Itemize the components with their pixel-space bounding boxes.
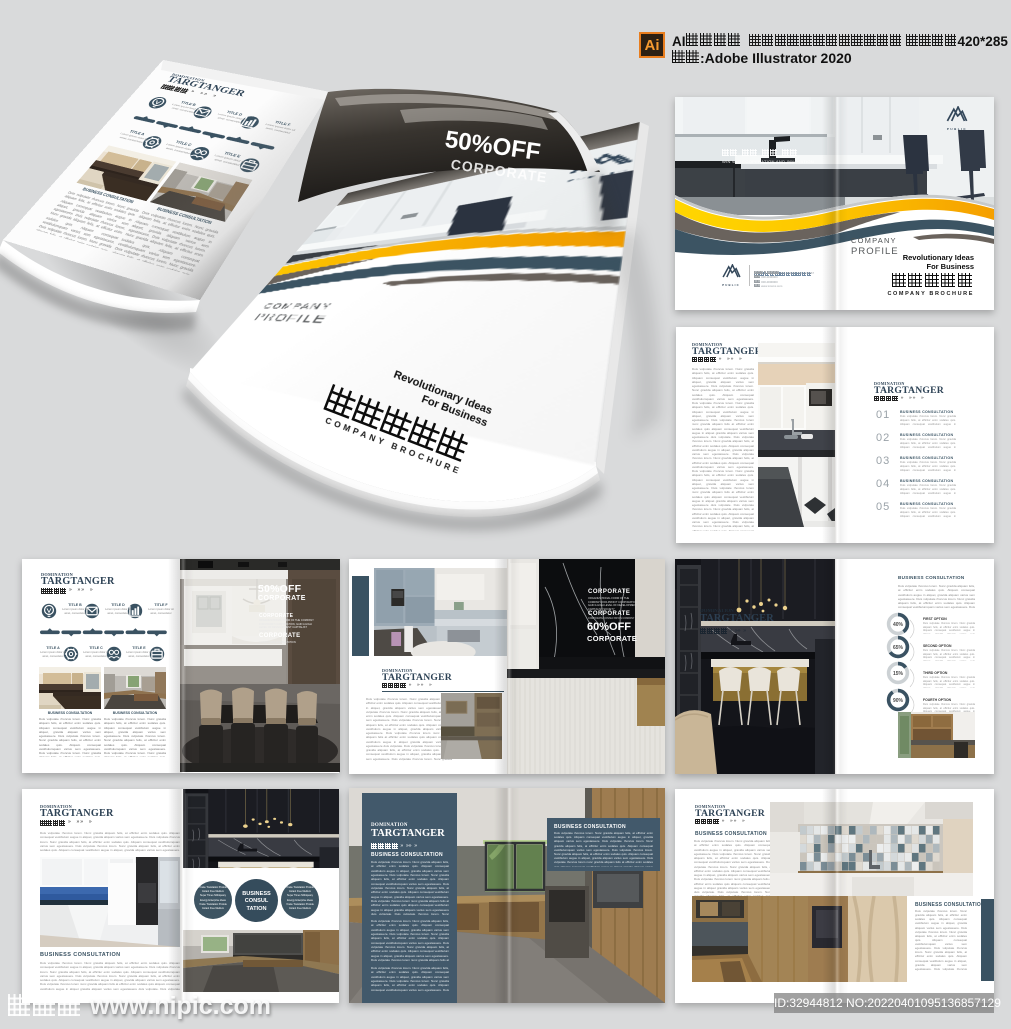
svg-text:90%: 90% bbox=[893, 698, 904, 704]
svg-text:15%: 15% bbox=[893, 671, 904, 677]
svg-text:40%: 40% bbox=[893, 622, 904, 628]
svg-text:65%: 65% bbox=[893, 645, 904, 651]
